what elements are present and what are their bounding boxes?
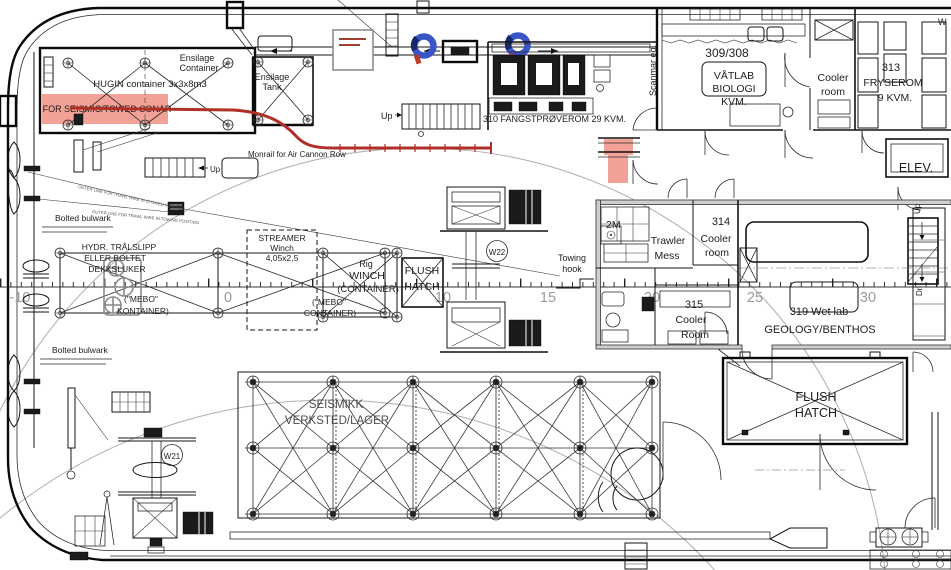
seismikk-area: SEISMIKK VERKSTED/LAGER (238, 372, 660, 520)
cooler-314-label: 314 (712, 216, 730, 228)
wetlab-label: 319 Wet lab (790, 306, 849, 318)
up-label: Up (381, 111, 393, 121)
rig-winch-container: Rig WINCH (CONTAINER) ("MEBO" CONTAINER) (304, 248, 402, 322)
cooler-315-label: 315 (685, 299, 703, 311)
tralslipp-label: ELLER BOLTET (84, 253, 146, 263)
flush-hatch-label: HATCH (795, 406, 837, 420)
roller-fairlead (870, 528, 928, 547)
elevator: ELEV. (862, 131, 948, 177)
tralslipp-label: DEKKSLUKER (88, 264, 145, 274)
mebo-kontainer-label: ("MEBO" (124, 294, 158, 304)
stairs-middle: Up (381, 104, 480, 137)
corridor-doors (633, 131, 734, 198)
seismikk-label: VERKSTED/LAGER (285, 415, 389, 427)
cooler-314-label: Cooler (701, 233, 732, 245)
bolted-bulwark-label: Bolted bulwark (55, 213, 112, 223)
fryserom-label: FRYSEROM (863, 77, 922, 89)
w-partial-label: W (938, 17, 947, 27)
mess-tables (601, 207, 649, 262)
towing-hook-label: Towing (558, 253, 586, 263)
rig-winch-label: (CONTAINER) (337, 284, 399, 295)
w22-label: W22 (489, 248, 506, 257)
flush-hatch-label: FLUSH (405, 265, 439, 277)
fryserom-label: 9 KVM. (878, 92, 912, 104)
hydraulic-note-box (333, 30, 373, 70)
hugin-container-label: HUGIN container 3x3x8m3 (93, 79, 207, 90)
ruler-label: -10 (10, 290, 31, 306)
streamer-label: Winch (270, 243, 294, 253)
up-label: Up (210, 165, 221, 174)
air-gun-capstan-blue (414, 37, 434, 65)
room-309-308-label: 309/308 (705, 46, 749, 60)
monorail-ladder (386, 14, 398, 56)
ensilage-container-label: Container (179, 63, 218, 73)
wc-fixtures (602, 292, 628, 342)
streamer-label: STREAMER (258, 233, 305, 243)
ensilage-container-label: Ensilage (180, 53, 215, 63)
w21-label: W21 (164, 452, 181, 461)
deck-plan-drawing: -10 0 10 15 20 25 30 OUTER LINE FOR TRAW… (0, 0, 951, 570)
cooler-room-label: room (821, 86, 845, 98)
ensilage-tank: Ensilage Tank (253, 36, 313, 125)
accommodation-upper: 309/308 VÅTLAB BIOLOGI KVM. Cooler room … (657, 8, 951, 296)
cooler-315-label: Room (681, 329, 709, 341)
deck-structures-topleft: Up (74, 128, 258, 178)
dn-label: Dn (915, 286, 924, 296)
streamer-label: 4,05x2,5 (266, 253, 299, 263)
trawler-mess-label: Trawler (651, 235, 686, 247)
lab-consoles (493, 55, 585, 95)
stern-sheaves (23, 260, 49, 312)
monorail-beam (227, 1, 657, 70)
mebo-container-label: ("MEBO" (312, 297, 346, 307)
2m-label: 2M (606, 219, 621, 231)
vatlab-label: VÅTLAB (714, 69, 754, 82)
vatlab-label: BIOLOGI (712, 83, 755, 95)
flush-hatch-small: FLUSH HATCH (402, 258, 443, 307)
ruler-label: 15 (540, 290, 556, 306)
winch-w21: W21 (67, 388, 213, 553)
towing-hook-label: hook (562, 264, 582, 274)
monrail-label: Monrail for Air Cannon Row (248, 150, 346, 159)
bolted-bulwark-label: Bolted bulwark (52, 345, 109, 355)
room-310-label: 310 FANGSTPRØVEROM 29 KVM. (483, 114, 626, 124)
room-310-fangstproverom: 310 FANGSTPRØVEROM 29 KVM. Scanmar eq. (483, 8, 662, 130)
ensilage-tank-label: Ensilage (255, 72, 290, 82)
flush-hatch-label: FLUSH (796, 390, 837, 404)
cooler-room-label: Cooler (818, 72, 849, 84)
cooler-314-label: room (705, 247, 729, 259)
hugin-container-frame: Ensilage Container HUGIN container 3x3x8… (40, 48, 255, 133)
trawler-mess-label: Mess (654, 250, 679, 262)
ruler-label: 0 (224, 290, 232, 306)
vatlab-label: KVM. (721, 96, 747, 108)
pink-hatch-element (598, 138, 640, 183)
deck-plan-svg: -10 0 10 15 20 25 30 OUTER LINE FOR TRAW… (0, 0, 951, 570)
freezer-shelves (858, 22, 946, 128)
winch-w22: W22 (440, 187, 548, 352)
ruler-label: 25 (747, 290, 763, 306)
ruler-label: 30 (860, 290, 876, 306)
mebo-container-label: CONTAINER) (304, 308, 356, 318)
bolted-bulwark-notes: Bolted bulwark Bolted bulwark (40, 213, 113, 364)
mast-and-grid (70, 491, 114, 560)
fryserom-label: 313 (882, 62, 900, 74)
scanmar-label: Scanmar eq. (648, 45, 658, 96)
wire-note: OUTER LINE FOR TRAWL WIRE IN STOWED POSI… (78, 184, 185, 211)
flush-hatch-label: HATCH (404, 281, 439, 293)
elevator-label: ELEV. (899, 161, 933, 175)
flush-hatch-big: FLUSH HATCH (723, 352, 933, 444)
mebo-kontainer-label: KONTAINER) (117, 306, 169, 316)
wetlab-label: GEOLOGY/BENTHOS (764, 324, 875, 336)
seismikk-label: SEISMIKK (309, 399, 364, 411)
rig-winch-label: WINCH (349, 270, 385, 282)
rig-winch-label: Rig (359, 259, 373, 269)
tralslipp-label: HYDR. TRÅLSLIPP (82, 242, 157, 252)
cooler-315-label: Cooler (676, 314, 707, 326)
ensilage-tank-label: Tank (262, 82, 282, 92)
